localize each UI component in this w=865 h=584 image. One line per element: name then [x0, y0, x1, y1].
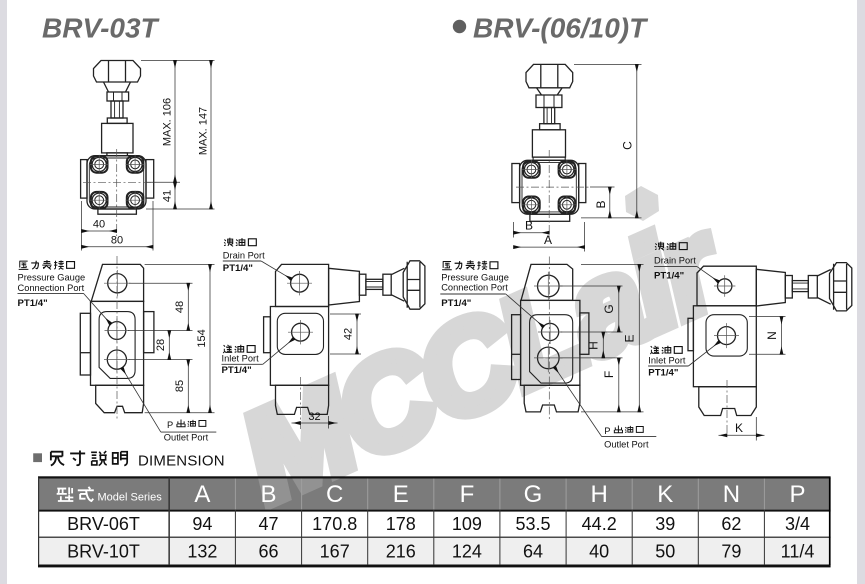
svg-text:B: B: [260, 481, 276, 508]
svg-text:Inlet Port: Inlet Port: [648, 356, 686, 366]
svg-text:216: 216: [386, 541, 416, 561]
svg-text:Connection Port: Connection Port: [18, 283, 85, 293]
svg-text:80: 80: [111, 235, 123, 247]
svg-text:124: 124: [452, 541, 482, 561]
svg-text:PT1/4": PT1/4": [441, 298, 471, 309]
svg-text:94: 94: [192, 514, 212, 534]
svg-text:K: K: [657, 481, 673, 508]
svg-text:85: 85: [174, 380, 186, 392]
svg-text:C: C: [326, 481, 343, 508]
svg-text:PT1/4": PT1/4": [648, 367, 678, 378]
svg-text:40: 40: [589, 541, 609, 561]
svg-text:PT1/4": PT1/4": [222, 365, 252, 376]
svg-text:79: 79: [721, 541, 741, 561]
svg-text:Pressure Gauge: Pressure Gauge: [441, 273, 509, 283]
svg-text:F: F: [460, 481, 475, 508]
svg-text:B: B: [594, 200, 608, 208]
svg-text:H: H: [591, 481, 608, 508]
svg-text:48: 48: [174, 301, 186, 313]
svg-text:MAX. 106: MAX. 106: [162, 98, 174, 146]
svg-text:P: P: [604, 426, 610, 436]
svg-text:Outlet Port: Outlet Port: [164, 432, 209, 442]
svg-text:44.2: 44.2: [582, 514, 617, 534]
svg-text:Pressure Gauge: Pressure Gauge: [18, 272, 86, 282]
svg-text:PT1/4": PT1/4": [223, 263, 253, 274]
svg-text:167: 167: [320, 541, 350, 561]
svg-text:MAX. 147: MAX. 147: [198, 107, 210, 155]
svg-text:K: K: [735, 421, 743, 435]
svg-text:PT1/4": PT1/4": [18, 298, 48, 309]
svg-text:Connection Port: Connection Port: [441, 283, 508, 293]
svg-text:53.5: 53.5: [515, 514, 550, 534]
svg-text:11/4: 11/4: [781, 541, 815, 561]
svg-text:PT1/4": PT1/4": [654, 270, 684, 281]
svg-text:Outlet Port: Outlet Port: [604, 440, 649, 450]
svg-text:66: 66: [258, 541, 278, 561]
svg-text:BRV-10T: BRV-10T: [67, 541, 140, 561]
svg-text:P: P: [789, 481, 805, 508]
svg-text:39: 39: [655, 514, 675, 534]
svg-text:E: E: [393, 481, 409, 508]
svg-text:64: 64: [523, 541, 543, 561]
svg-text:Model Series: Model Series: [98, 492, 163, 504]
svg-text:C: C: [621, 141, 635, 150]
svg-text:32: 32: [308, 411, 320, 423]
svg-text:N: N: [765, 331, 779, 340]
svg-text:3/4: 3/4: [785, 514, 810, 534]
svg-text:132: 132: [187, 541, 217, 561]
svg-text:Inlet Port: Inlet Port: [222, 354, 260, 364]
svg-text:Drain Port: Drain Port: [654, 256, 696, 266]
svg-text:DIMENSION: DIMENSION: [138, 452, 225, 469]
svg-text:A: A: [194, 481, 210, 508]
svg-text:H: H: [587, 341, 601, 350]
svg-text:170.8: 170.8: [312, 514, 357, 534]
svg-text:Drain Port: Drain Port: [223, 250, 265, 260]
svg-text:BRV-06T: BRV-06T: [67, 514, 140, 534]
svg-text:40: 40: [93, 219, 105, 231]
svg-text:41: 41: [162, 190, 174, 202]
svg-text:47: 47: [258, 514, 278, 534]
svg-text:42: 42: [343, 328, 355, 340]
svg-text:E: E: [623, 334, 637, 342]
svg-text:BRV-03T: BRV-03T: [42, 13, 161, 44]
svg-text:50: 50: [655, 541, 675, 561]
svg-text:178: 178: [386, 514, 416, 534]
svg-text:B: B: [525, 219, 533, 233]
svg-text:62: 62: [721, 514, 741, 534]
svg-text:BRV-(06/10)T: BRV-(06/10)T: [473, 13, 649, 44]
svg-text:P: P: [167, 420, 173, 430]
svg-text:N: N: [723, 481, 740, 508]
svg-text:G: G: [602, 304, 616, 313]
svg-text:28: 28: [155, 339, 167, 351]
svg-text:G: G: [524, 481, 543, 508]
svg-text:154: 154: [196, 329, 208, 347]
svg-text:F: F: [602, 371, 616, 378]
svg-text:A: A: [544, 233, 552, 247]
svg-text:109: 109: [452, 514, 482, 534]
